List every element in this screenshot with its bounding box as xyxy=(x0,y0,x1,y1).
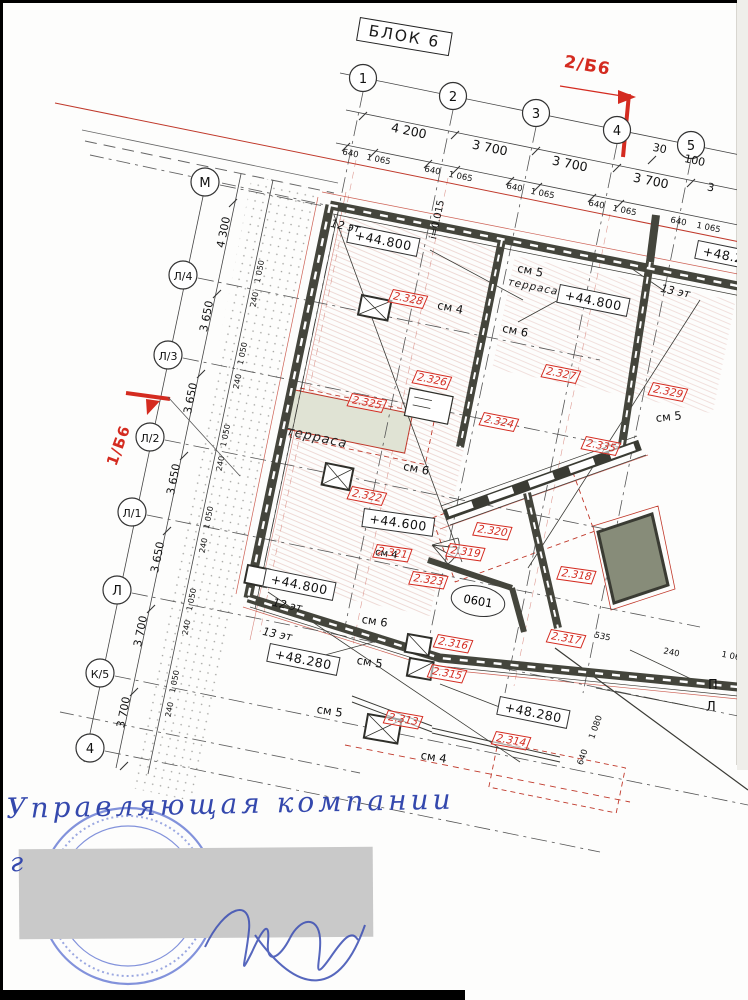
paper-edge-shadow xyxy=(737,0,748,770)
signature xyxy=(0,0,748,1000)
scanned-drawing-page: 0601 1 2 3 4 5 М Л/4 Л/3 Л/2 Л xyxy=(0,0,748,1000)
handwriting-line2: г xyxy=(10,848,23,878)
scan-edge-top xyxy=(0,0,748,3)
scan-edge-left xyxy=(0,0,3,1000)
scan-edge-bottom xyxy=(0,990,465,1000)
